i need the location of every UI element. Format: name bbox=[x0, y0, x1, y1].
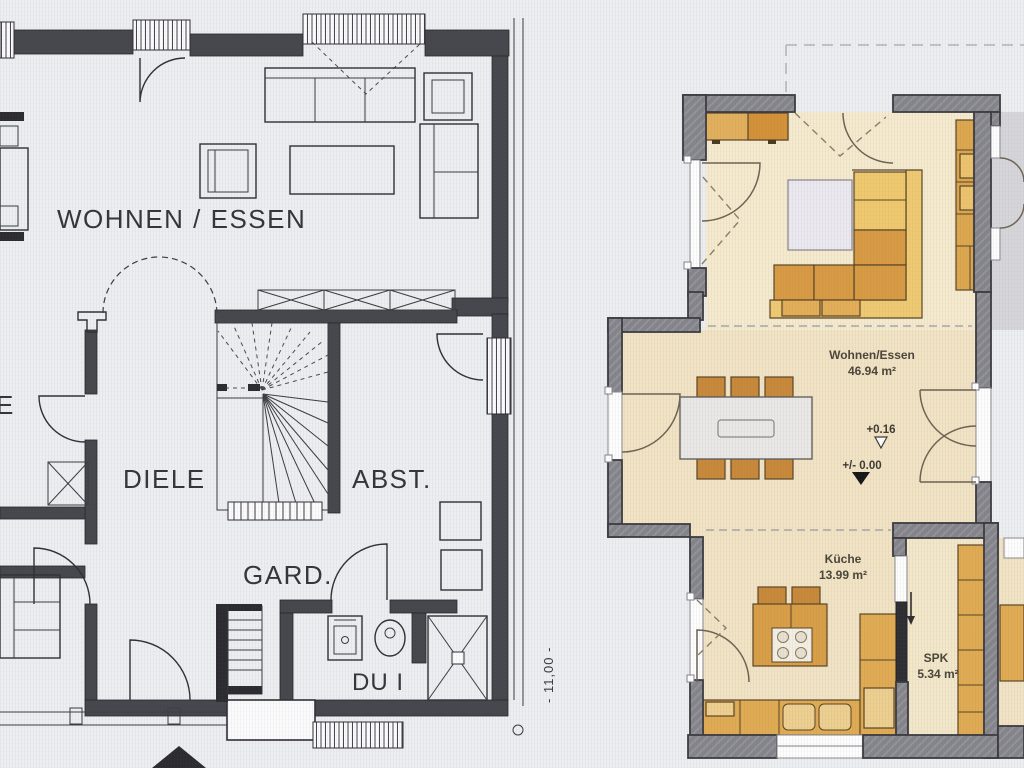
cabinet-row bbox=[258, 290, 455, 310]
armchair bbox=[200, 144, 256, 198]
column bbox=[78, 312, 106, 332]
dimension-11m: - 11,00 - bbox=[541, 647, 556, 703]
label-wohnen-essen-area: 46.94 m² bbox=[848, 364, 896, 378]
label-kueche-area: 13.99 m² bbox=[819, 568, 867, 582]
hall-door-arc bbox=[130, 640, 190, 700]
sink-basin-1 bbox=[783, 704, 815, 730]
sliding-door-leaf bbox=[896, 602, 907, 682]
entrance-porch bbox=[227, 700, 315, 740]
dining-table bbox=[680, 397, 812, 459]
window-right bbox=[487, 338, 511, 414]
floorplan-screenshot: WOHNEN / ESSEN DIELE ABST. GARD. DU I E … bbox=[0, 0, 1024, 768]
label-spk-area: 5.34 m² bbox=[917, 667, 958, 681]
shelf-ladder bbox=[216, 604, 262, 702]
dining-group bbox=[680, 377, 812, 479]
left-room-door-arc bbox=[39, 396, 85, 442]
level-zero-text: +/- 0.00 bbox=[842, 460, 881, 472]
label-diele: DIELE bbox=[123, 464, 206, 494]
cooktop bbox=[772, 628, 812, 662]
sideboard bbox=[700, 113, 788, 144]
bench-lower-left bbox=[0, 575, 60, 658]
double-door-dashed-right bbox=[159, 257, 217, 313]
pantry-shelf bbox=[958, 545, 984, 735]
label-abst: ABST. bbox=[352, 464, 432, 494]
terrace-door-opening bbox=[608, 392, 622, 460]
label-kueche: Küche bbox=[825, 552, 862, 566]
label-cut-room: E bbox=[0, 390, 15, 420]
label-wohnen-essen: WOHNEN / ESSEN bbox=[57, 204, 306, 234]
sink-basin-2 bbox=[819, 704, 851, 730]
corner-sofa bbox=[420, 124, 478, 218]
toilet bbox=[375, 620, 405, 656]
window-living-left bbox=[690, 160, 700, 268]
coffee-table bbox=[290, 146, 394, 194]
label-gard: GARD. bbox=[243, 560, 333, 590]
boundary-line bbox=[513, 18, 523, 735]
left-plan: WOHNEN / ESSEN DIELE ABST. GARD. DU I E … bbox=[0, 14, 556, 768]
floorplan-canvas: WOHNEN / ESSEN DIELE ABST. GARD. DU I E … bbox=[0, 0, 1024, 768]
label-du: DU I bbox=[352, 669, 404, 696]
cabinet-x-left bbox=[48, 462, 88, 505]
roof-outline bbox=[786, 45, 1024, 93]
window-top bbox=[303, 14, 425, 44]
shower bbox=[428, 616, 487, 700]
window-left-corner bbox=[0, 22, 14, 58]
dining-table-cut bbox=[0, 112, 28, 241]
abst-door-arc bbox=[437, 334, 483, 380]
rug bbox=[788, 180, 852, 250]
label-spk: SPK bbox=[924, 651, 949, 665]
right-plan: +0.16 +/- 0.00 Wohnen/Essen 46.94 m² Küc… bbox=[605, 45, 1024, 758]
double-door-opening bbox=[976, 388, 991, 484]
side-table bbox=[424, 73, 472, 120]
entry-door-frame bbox=[133, 20, 190, 50]
gard-door-arc bbox=[331, 544, 387, 600]
north-arrow bbox=[152, 746, 206, 768]
abst-storage-boxes bbox=[440, 502, 482, 590]
entry-door-arc bbox=[140, 58, 185, 102]
staircase bbox=[217, 323, 328, 520]
label-wohnen-essen-color: Wohnen/Essen bbox=[829, 348, 915, 362]
pantry-door-opening bbox=[895, 556, 907, 602]
level-upper-text: +0.16 bbox=[866, 424, 895, 436]
double-door-dashed-left bbox=[103, 257, 159, 313]
sink bbox=[328, 616, 362, 660]
window-bottom bbox=[313, 722, 403, 748]
sofa bbox=[265, 68, 415, 122]
stair-railing bbox=[228, 502, 322, 520]
